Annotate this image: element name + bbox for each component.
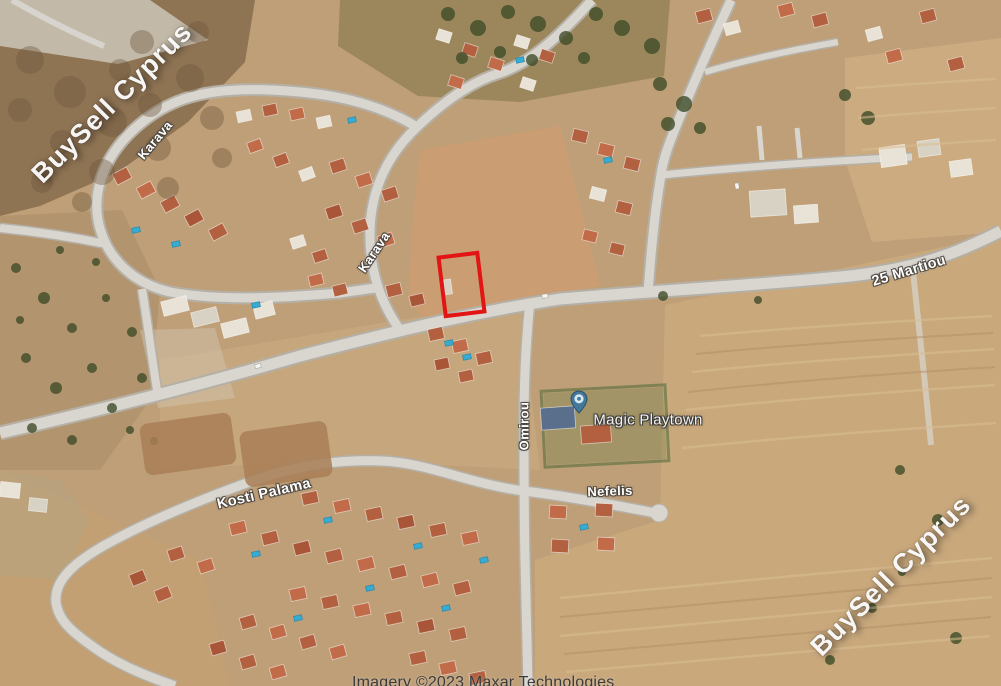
road-label-omirou: Omirou bbox=[517, 402, 532, 451]
poi-pin-magic-playtown[interactable] bbox=[570, 390, 588, 414]
poi-label-magic-playtown[interactable]: Magic Playtown bbox=[593, 412, 702, 429]
satellite-terrain bbox=[0, 0, 1001, 686]
plot-boundary bbox=[436, 251, 486, 319]
road-label-nefelis: Nefelis bbox=[587, 483, 633, 500]
map-pin-icon bbox=[570, 390, 588, 414]
map-attribution: Imagery ©2023 Maxar Technologies bbox=[352, 674, 614, 686]
satellite-map[interactable]: Karava Karava 25 Martiou Omirou Kosti Pa… bbox=[0, 0, 1001, 686]
